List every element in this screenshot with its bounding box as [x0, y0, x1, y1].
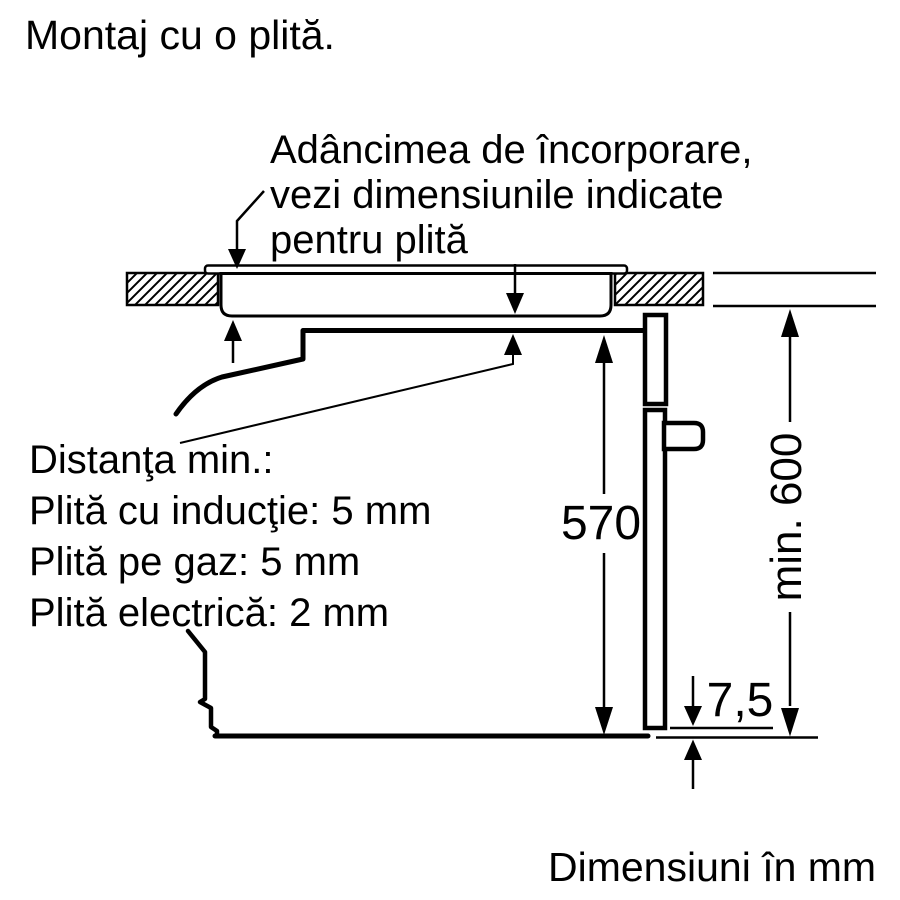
- dimension-7-5: [684, 676, 702, 789]
- door-panel: [645, 410, 665, 728]
- oven-left-front-outline: [188, 631, 217, 734]
- dim-570-arrow-up-icon: [595, 335, 613, 363]
- min-distance-induction: Plită cu inducţie: 5 mm: [29, 486, 431, 537]
- oven-door: [645, 315, 703, 728]
- dim-label-min-600: min. 600: [765, 433, 809, 602]
- clearance-leader-line: [180, 355, 513, 443]
- installation-diagram-page: Montaj cu o plită. Adâncimea de încorpor…: [0, 0, 900, 900]
- units-note: Dimensiuni în mm: [548, 844, 876, 891]
- leader-line: [237, 191, 264, 250]
- hob: [205, 266, 627, 317]
- dim-75-arrow-up-icon: [684, 740, 702, 761]
- countertop-right-hatch: [615, 273, 703, 305]
- clearance-leader-arrow-up-icon: [504, 334, 522, 355]
- countertop-left-hatch: [127, 273, 218, 305]
- dim-label-570: 570: [561, 500, 641, 548]
- clearance-arrow-left: [224, 320, 242, 363]
- dim-600-arrow-up-icon: [781, 309, 799, 337]
- embed-depth-annotation-line1: Adâncimea de încorporare,: [270, 128, 753, 173]
- dim-label-7-5: 7,5: [707, 677, 774, 725]
- min-distance-electric: Plită electrică: 2 mm: [29, 588, 431, 639]
- depth-annotation-leader: [228, 191, 264, 269]
- dim-570-arrow-down-icon: [595, 707, 613, 735]
- embed-depth-annotation-line2: vezi dimensiunile indicate: [270, 173, 753, 218]
- dim-75-arrow-down-icon: [684, 706, 702, 726]
- embed-depth-annotation: Adâncimea de încorporare, vezi dimensiun…: [270, 128, 753, 263]
- page-title: Montaj cu o plită.: [25, 12, 335, 59]
- embed-depth-annotation-line3: pentru plită: [270, 218, 753, 263]
- min-distance-note: Distanţa min.: Plită cu inducţie: 5 mm P…: [29, 435, 431, 639]
- door-top-trim: [645, 315, 666, 404]
- clearance-arrow-up-icon: [224, 320, 242, 341]
- door-handle: [664, 423, 703, 449]
- hob-body: [221, 274, 611, 317]
- clearance-leader: [180, 334, 522, 443]
- min-distance-gas: Plită pe gaz: 5 mm: [29, 537, 431, 588]
- dim-600-arrow-down-icon: [781, 708, 799, 737]
- oven-top-front-outline: [176, 331, 643, 415]
- min-distance-heading: Distanţa min.:: [29, 435, 431, 486]
